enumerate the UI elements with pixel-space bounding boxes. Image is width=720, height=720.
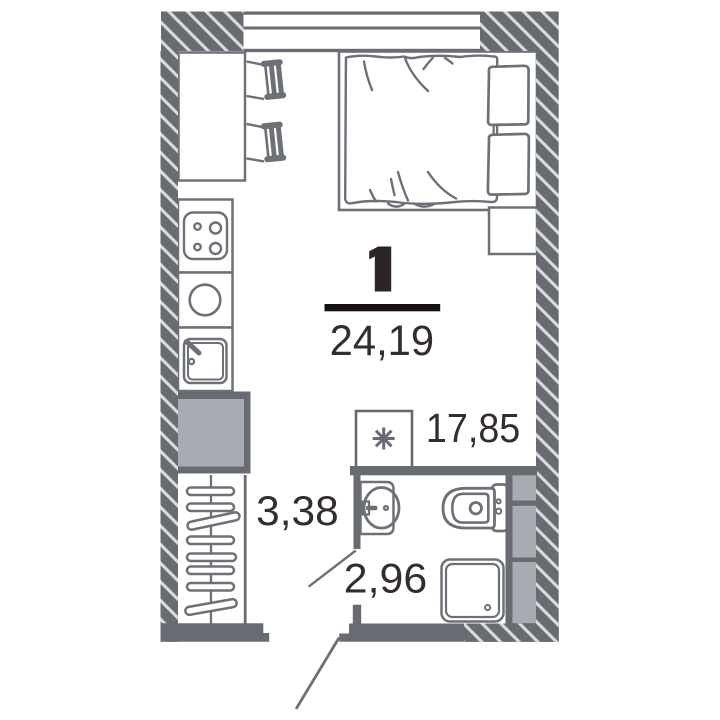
svg-text:3,38: 3,38: [256, 487, 339, 534]
svg-text:17,85: 17,85: [426, 405, 520, 451]
svg-text:2,96: 2,96: [344, 556, 427, 602]
svg-text:24,19: 24,19: [330, 317, 435, 364]
